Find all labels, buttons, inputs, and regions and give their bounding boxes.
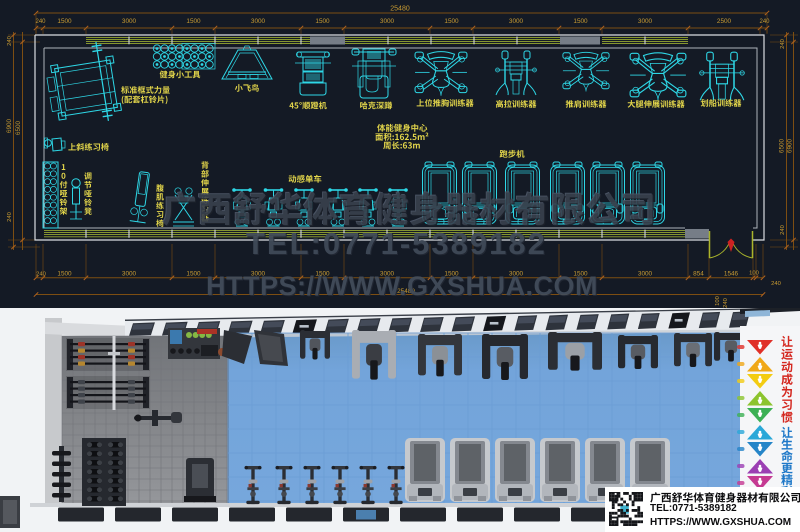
svg-text:25480: 25480 bbox=[390, 6, 410, 13]
svg-text:3000: 3000 bbox=[638, 18, 653, 25]
svg-text:3000: 3000 bbox=[509, 18, 524, 25]
svg-text:3000: 3000 bbox=[251, 18, 266, 25]
svg-text:1500: 1500 bbox=[186, 270, 201, 277]
svg-text:240: 240 bbox=[759, 19, 770, 25]
svg-text:6900: 6900 bbox=[787, 138, 794, 153]
svg-text:240: 240 bbox=[780, 39, 786, 49]
svg-text:1546: 1546 bbox=[724, 270, 739, 277]
svg-text:100: 100 bbox=[749, 271, 759, 277]
svg-text:240: 240 bbox=[35, 19, 46, 25]
svg-text:240: 240 bbox=[7, 36, 13, 46]
svg-text:3000: 3000 bbox=[638, 270, 653, 277]
svg-text:1500: 1500 bbox=[57, 270, 72, 277]
svg-text:240: 240 bbox=[723, 298, 729, 308]
svg-text:1500: 1500 bbox=[186, 18, 201, 25]
svg-text:3000: 3000 bbox=[122, 270, 137, 277]
svg-text:240: 240 bbox=[36, 271, 46, 277]
svg-text:854: 854 bbox=[693, 270, 704, 277]
svg-text:1500: 1500 bbox=[315, 18, 330, 25]
svg-text:240: 240 bbox=[7, 212, 13, 222]
svg-text:3000: 3000 bbox=[122, 18, 137, 25]
svg-text:100: 100 bbox=[715, 296, 721, 306]
svg-text:2500: 2500 bbox=[717, 18, 732, 25]
svg-text:1500: 1500 bbox=[573, 18, 588, 25]
svg-text:6500: 6500 bbox=[15, 120, 22, 135]
svg-text:3000: 3000 bbox=[380, 18, 395, 25]
svg-text:1500: 1500 bbox=[57, 18, 72, 25]
svg-text:6900: 6900 bbox=[6, 118, 13, 133]
svg-text:6500: 6500 bbox=[779, 138, 786, 153]
svg-text:1500: 1500 bbox=[444, 18, 459, 25]
svg-text:240: 240 bbox=[780, 225, 786, 235]
svg-text:240: 240 bbox=[771, 281, 781, 287]
